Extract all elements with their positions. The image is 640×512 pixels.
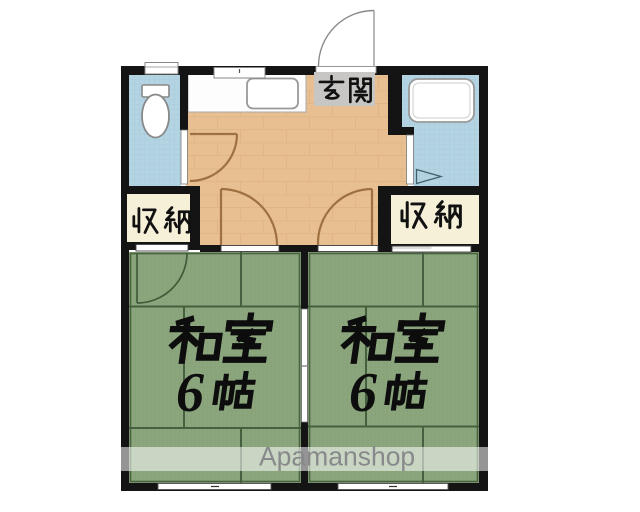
svg-text:Apamanshop: Apamanshop xyxy=(259,442,415,472)
svg-text:6: 6 xyxy=(349,362,377,424)
svg-text:6: 6 xyxy=(176,362,204,424)
